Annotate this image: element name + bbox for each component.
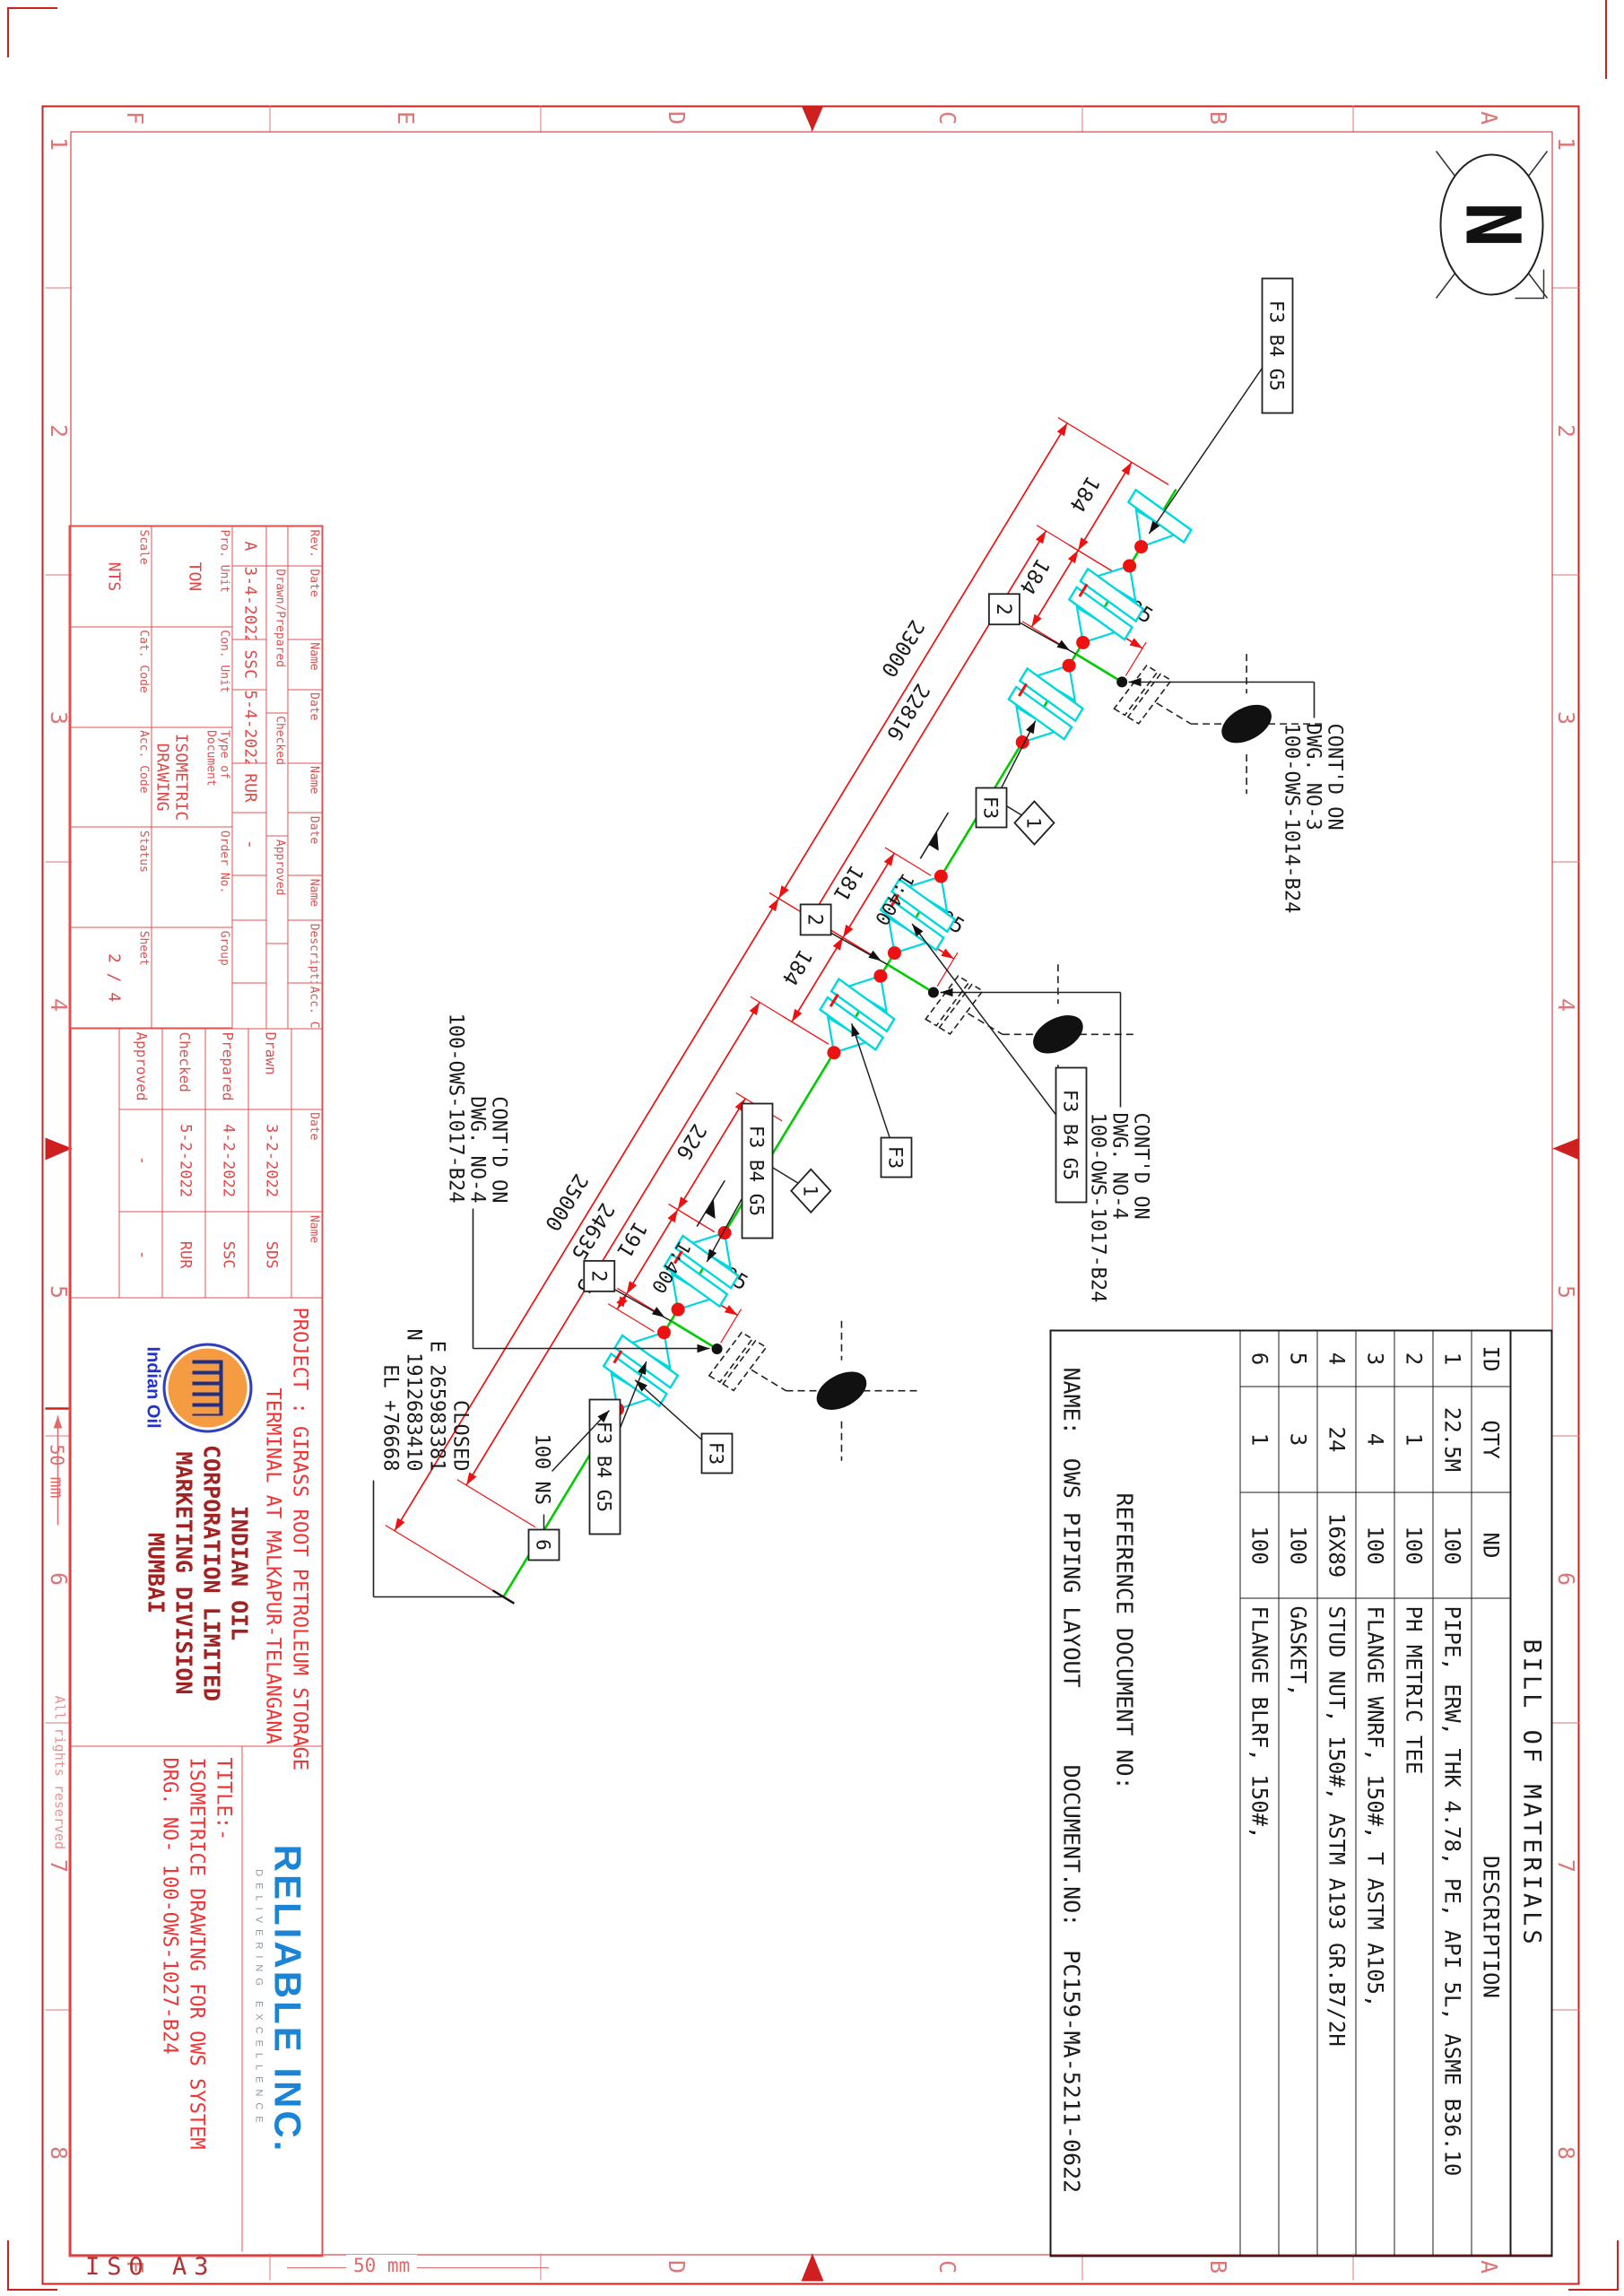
doc-field-label: Order No. [216,827,231,926]
signoff-date: 3-2-2022 [248,1109,291,1213]
vendor-name: RELIABLE INC. [265,1746,308,2251]
bom-reference-line: REFERENCE DOCUMENT NO: [1098,1331,1150,2255]
rev-header-cell: Rev. [287,526,321,566]
dim-extension [456,1479,534,1526]
slope-line [920,812,948,857]
doc-field-label: Scale [135,526,151,626]
doc-field-value: TON [185,526,204,626]
rights-note: All rights reserved [51,1695,67,1849]
dim-extension [750,996,828,1044]
rev-subheader-cell: Checked [265,713,287,837]
rev-header-cell: Name [287,639,321,690]
weld-dot [827,1046,840,1059]
doc-fields-row-2: Scale NTS Cat. Code Acc. Code Status She… [70,526,151,1028]
existing-flange [723,1340,766,1389]
bom-cell-desc: FLANGE BLRF, 150#, [1240,1598,1278,2255]
dim-extension [385,1525,495,1592]
bom-name-value: OWS PIPING LAYOUT [1058,1457,1084,1687]
bom-cell-qty: 4 [1356,1387,1394,1492]
bom-data-row: 4 24 16X89 STUD NUT, 150#, ASTM A193 GR.… [1316,1331,1355,2255]
scale-bar-horizontal: 50 mm [287,2255,549,2282]
tee-balloon-number: 2 [586,1270,609,1282]
rev-header-cell: Date [287,566,321,639]
branch-junction-dot [711,1343,722,1353]
bom-title: BILL OF MATERIALS [1509,1331,1550,2255]
bom-cell-nd: 100 [1279,1492,1316,1598]
weld-dot [656,1326,670,1339]
signoff-row: Checked 5-2-2022 RUR [161,1029,204,1297]
slope-line [697,1180,725,1226]
doc-field: Scale NTS [70,526,151,627]
existing-line [751,1370,786,1390]
dim-extension [720,1309,741,1343]
signoff-name: SDS [248,1212,291,1297]
rev-subheader-cell: Drawn/Prepared [265,566,287,713]
company-line: MUMBAI [142,1445,169,1701]
doc-field: Cat. Code [70,627,151,727]
weld-dot [1076,635,1090,648]
drawing-page: 1122334455667788AABBCCDDEEFF 50 mm N 184… [0,0,1624,2296]
bom-cell-id: 1 [1433,1331,1471,1387]
bom-cell-id: 2 [1394,1331,1432,1387]
doc-field-label: Status [135,827,151,926]
signoff-corner [291,1029,321,1109]
project-text: PROJECT : GIRASS ROOT PETROLEUM STORAGE … [258,1298,321,1745]
signoff-row: Approved - - [118,1029,161,1297]
company-line: MARKETING DIVISION [169,1445,197,1701]
bom-cell-id: 3 [1356,1331,1394,1387]
doc-field: Acc. Code [70,727,151,828]
dim-arrow [941,948,953,958]
signoff-name-header: Name [291,1212,321,1297]
dim-label: 184 [777,944,816,988]
tee-balloon-number: 2 [803,913,825,925]
existing-drain-blob [810,1363,873,1417]
bom-cell-desc: STUD NUT, 150#, ASTM A193 GR.B7/2H [1317,1598,1355,2255]
corner-mark-tr [1605,0,1607,79]
paper-size-stamp: ISO A3 [85,2253,216,2281]
branch-junction-dot [1116,676,1127,687]
rev-value-cell: - [231,813,265,875]
dim-label: 191 [612,1217,651,1261]
bom-col-nd: ND [1472,1492,1509,1598]
company-name: INDIAN OILCORPORATION LIMITEDMARKETING D… [142,1445,253,1701]
signoff-role: Drawn [248,1029,291,1109]
vendor-tagline: DELIVERING EXCELLENCE [253,1746,264,2251]
contd-note-line: CONT'D ON [1129,1112,1151,1219]
bom-cell-nd: 100 [1240,1492,1278,1598]
existing-line [1156,702,1190,723]
contd-note-line: DWG. NO-4 [1107,1112,1130,1219]
contd-note-line: CONT'D ON [487,1096,509,1203]
rev-value-cell: SSC [231,639,265,690]
spec-label: F3 B4 G5 [745,1125,767,1215]
scale-bar-line [287,2267,549,2268]
closed-note-line: N 1912683410 [402,1328,424,1471]
bom-cell-qty: 3 [1279,1387,1316,1492]
doc-field-label: Sheet [135,927,151,1027]
dim-arrow [778,885,788,898]
contd-note-line: DWG. NO-3 [1301,723,1324,830]
signoff-role: Checked [161,1029,204,1109]
rev-header-cell: Name [287,875,321,920]
revision-subheader-row: Drawn/PreparedCheckedApproved [265,526,287,1028]
dim-label: 22816 [881,679,934,744]
pipe-branch [671,1320,716,1348]
f3-label: F3 [884,1145,906,1168]
weld-dot [717,1226,731,1239]
rev-subheader-cell [265,526,287,566]
drawing-title: TITLE:- ISOMETRICE DRAWING FOR OWS SYSTE… [150,1746,242,2251]
existing-drain-blob [1026,1007,1089,1061]
bom-data-row: 5 3 100 GASKET, [1278,1331,1316,2255]
rev-header-cell: Date [287,690,321,763]
signoff-name: RUR [161,1212,204,1297]
bom-table: BILL OF MATERIALS ID QTY ND DESCRIPTION … [1049,1329,1552,2257]
spec-label: F3 B4 G5 [1059,1089,1081,1179]
dim-arrow [749,1002,759,1014]
title-line1: ISOMETRICE DRAWING FOR OWS SYSTEM [182,1757,209,2240]
bom-empty-space [1150,1331,1239,2255]
corner-mark-tl [7,7,57,57]
weld-dot [1062,658,1075,672]
vendor-logo: RELIABLE INC. DELIVERING EXCELLENCE [253,1746,321,2251]
title-label: TITLE:- [209,1757,236,2240]
bom-data-row: 1 22.5M 100 PIPE, ERW, THK 4.78, PE, API… [1432,1331,1471,2255]
scale-bar-label: 50 mm [346,2255,417,2276]
doc-field-label: Type of Document [203,727,231,827]
rev-value-cell: RUR [231,763,265,813]
bom-cell-qty: 22.5M [1433,1387,1471,1492]
dim-arrow [626,1281,636,1293]
bom-name-line: NAME:OWS PIPING LAYOUTDOCUMENT.NO:PC159-… [1045,1331,1098,2255]
company-line: INDIAN OIL [225,1445,253,1701]
blind-balloon-number: 6 [532,1539,553,1551]
rev-header-cell: Description [287,920,321,983]
bom-cell-nd: 100 [1394,1492,1432,1598]
rev-subheader-cell [265,944,287,1028]
dim-arrow [1067,550,1077,562]
spec-label: F3 B4 G5 [593,1421,614,1511]
bom-data-row: 3 4 100 FLANGE WNRF, 150#, T ASTM A105, [1355,1331,1394,2255]
doc-field-label: Pro. Unit [216,526,231,626]
title-line2: DRG. NO- 100-OWS-1027-B24 [155,1757,182,2240]
signoff-name: - [118,1212,161,1297]
dim-arrow [843,924,853,936]
dim-label: 184 [1064,472,1104,516]
dim-extension [1057,417,1168,484]
bom-doc-label: DOCUMENT.NO: [1058,1764,1084,1926]
signoff-date: 5-2-2022 [161,1109,204,1213]
dim-arrow [883,853,893,865]
rev-value-cell [231,983,265,1028]
bom-name-label: NAME: [1058,1367,1084,1434]
project-line2: TERMINAL AT MALKAPUR-TELANGANA [258,1307,285,1738]
signoff-rows: Drawn 3-2-2022 SDS Prepared 4-2-2022 SSC… [118,1029,291,1297]
dim-arrow [395,1518,404,1530]
bom-col-qty: QTY [1472,1387,1509,1492]
hindi-script-icon [193,1360,223,1415]
signoff-row: Prepared 4-2-2022 SSC [204,1029,248,1297]
closed-note-line: EL +76668 [378,1364,401,1471]
bom-cell-desc: FLANGE WNRF, 150#, T ASTM A105, [1356,1598,1394,2255]
dim-label: 226 [671,1119,710,1163]
indian-oil-logo: Indian Oil [143,1343,253,1432]
dim-extension [1125,641,1146,675]
dim-arrow [768,898,777,910]
bom-rows: 1 22.5M 100 PIPE, ERW, THK 4.78, PE, API… [1239,1331,1471,2255]
dim-arrow [1056,422,1066,435]
vendor-title-section: RELIABLE INC. DELIVERING EXCELLENCE TITL… [70,1746,321,2251]
company-line: CORPORATION LIMITED [197,1445,225,1701]
closed-note-line: CLOSED [448,1400,471,1471]
rev-value-cell: 5-4-2022 [231,690,265,763]
doc-field: Sheet 2 / 4 [70,927,151,1028]
leader-arrow [1128,677,1141,686]
project-line1: PROJECT : GIRASS ROOT PETROLEUM STORAGE [285,1307,312,1738]
bom-cell-desc: GASKET, [1279,1598,1316,2255]
doc-field: Group [151,927,231,1028]
weld-dot [671,1302,684,1316]
doc-field: Pro. Unit TON [151,526,231,627]
weld-dot [873,969,887,982]
spec-label: F3 B4 G5 [1265,300,1287,390]
revision-header-row: Rev.DateNameDateNameDateNameDescriptionA… [287,526,321,1028]
revision-section: Rev.DateNameDateNameDateNameDescriptionA… [70,526,321,1029]
dim-arrow [677,1196,687,1209]
label-leader [1149,345,1277,534]
indian-oil-caption: Indian Oil [143,1343,163,1432]
bom-header-row: ID QTY ND DESCRIPTION [1471,1331,1509,2255]
f3-label: F3 [705,1441,726,1464]
signoff-date: - [118,1109,161,1213]
pipe-balloon-number: 1 [799,1185,821,1196]
corner-mark-bl [7,2240,57,2291]
dim-line [811,530,1046,918]
signoff-section: Date Name Drawn 3-2-2022 SDS Prepared 4-… [70,1029,321,1298]
existing-drain-blob [1215,697,1278,751]
bom-cell-nd: 100 [1433,1492,1471,1598]
bom-cell-id: 5 [1279,1331,1316,1387]
bom-data-row: 6 1 100 FLANGE BLRF, 150#, [1239,1331,1278,2255]
contd-note-line: CONT'D ON [1323,723,1345,830]
signoff-name: SSC [204,1212,248,1297]
contd-note-line: 100-OWS-1017-B24 [444,1013,466,1203]
bom-cell-nd: 16X89 [1317,1492,1355,1598]
weld-dot [1134,540,1148,553]
contd-note-line: 100-OWS-1017-B24 [1086,1112,1108,1302]
rev-value-cell [231,875,265,920]
rev-value-cell [231,920,265,983]
rev-header-cell: Name [287,763,321,813]
contd-note-line: 100-OWS-1014-B24 [1280,723,1302,913]
doc-fields-row-1: Pro. Unit TON Con. Unit Type of Document… [151,526,231,1028]
dim-label: 181 [828,860,867,904]
rev-value-cell: A [231,526,265,566]
indian-oil-logo-icon [163,1343,253,1432]
signoff-role: Prepared [204,1029,248,1109]
pipe-branch [887,964,933,992]
bom-cell-desc: PH METRIC TEE [1394,1598,1432,2255]
bom-cell-desc: PIPE, ERW, THK 4.78, PE, API 5L, ASME B3… [1433,1598,1471,2255]
rev-value-cell: 3-4-2022 [231,566,265,639]
dim-arrow [667,1209,677,1222]
dim-extension [937,952,958,987]
dim-arrow [1035,530,1045,543]
doc-field: Type of Document ISOMETRIC DRAWING [151,727,231,828]
rev-header-cell: Acc. Code [287,983,321,1028]
dim-arrow [791,1008,801,1021]
dim-arrow [1031,613,1041,626]
existing-line [968,1013,1002,1033]
bom-cell-qty: 1 [1394,1387,1432,1492]
bom-cell-qty: 24 [1317,1387,1355,1492]
leader-arrow [940,987,952,996]
pipe-balloon-number: 1 [1022,817,1044,829]
title-block: Rev.DateNameDateNameDateNameDescriptionA… [68,525,323,2257]
bom-cell-nd: 100 [1356,1492,1394,1598]
rev-header-cell: Date [287,813,321,875]
doc-field-value: ISOMETRIC DRAWING [152,727,190,827]
bom-col-id: ID [1472,1331,1509,1387]
landscape-sheet: 1122334455667788AABBCCDDEEFF 50 mm N 184… [0,0,1624,2296]
signoff-row: Drawn 3-2-2022 SDS [248,1029,291,1297]
signoff-date: 4-2-2022 [204,1109,248,1213]
doc-field-label: Con. Unit [216,627,231,726]
doc-field-label: Acc. Code [135,727,151,827]
weld-dot [934,869,947,883]
rev-subheader-cell: Approved [265,836,287,944]
revision-data-row: A3-4-2022SSC5-4-2022RUR- [231,526,265,1028]
doc-field-value: NTS [104,526,123,626]
doc-field: Order No. [151,827,231,927]
tee-balloon-number: 2 [991,603,1013,614]
closed-note-line: E 265983381 [425,1340,447,1471]
bom-cell-qty: 1 [1240,1387,1278,1492]
signoff-date-header: Date [291,1109,321,1213]
doc-field-label: Group [216,927,231,1027]
doc-field: Status [70,827,151,927]
contd-note-line: DWG. NO-4 [465,1096,488,1203]
signoff-role: Approved [118,1029,161,1109]
dim-arrow [1129,638,1142,648]
doc-field-label: Cat. Code [135,627,151,726]
corner-mark-br [1568,2240,1619,2291]
bom-cell-id: 6 [1240,1331,1278,1387]
doc-field-value: 2 / 4 [104,927,123,1027]
leader-arrow [697,1344,709,1352]
project-section: PROJECT : GIRASS ROOT PETROLEUM STORAGE … [70,1298,321,1746]
branch-junction-dot [927,987,938,997]
dim-arrow [724,1305,736,1315]
pipe-branch [1075,654,1121,682]
bom-col-desc: DESCRIPTION [1472,1598,1509,2255]
weld-dot [887,946,900,960]
f3-label: F3 [979,796,1001,818]
company-row: Indian Oil INDIAN OILCORPORATION LIMITED… [142,1298,258,1745]
bom-doc-value: PC159-MA-5211-0622 [1058,1950,1084,2193]
dim-arrow [466,1472,476,1484]
dim-arrow [1121,462,1131,474]
bom-data-row: 2 1 100 PH METRIC TEE [1394,1331,1432,2255]
bom-cell-id: 4 [1317,1331,1355,1387]
dim-label: 23000 [876,615,928,681]
dim-arrow [1078,537,1088,550]
doc-field: Con. Unit [151,627,231,727]
dim-label: 184 [1014,553,1054,597]
size-label: 100 NS [530,1433,552,1504]
weld-dot [1123,559,1136,572]
